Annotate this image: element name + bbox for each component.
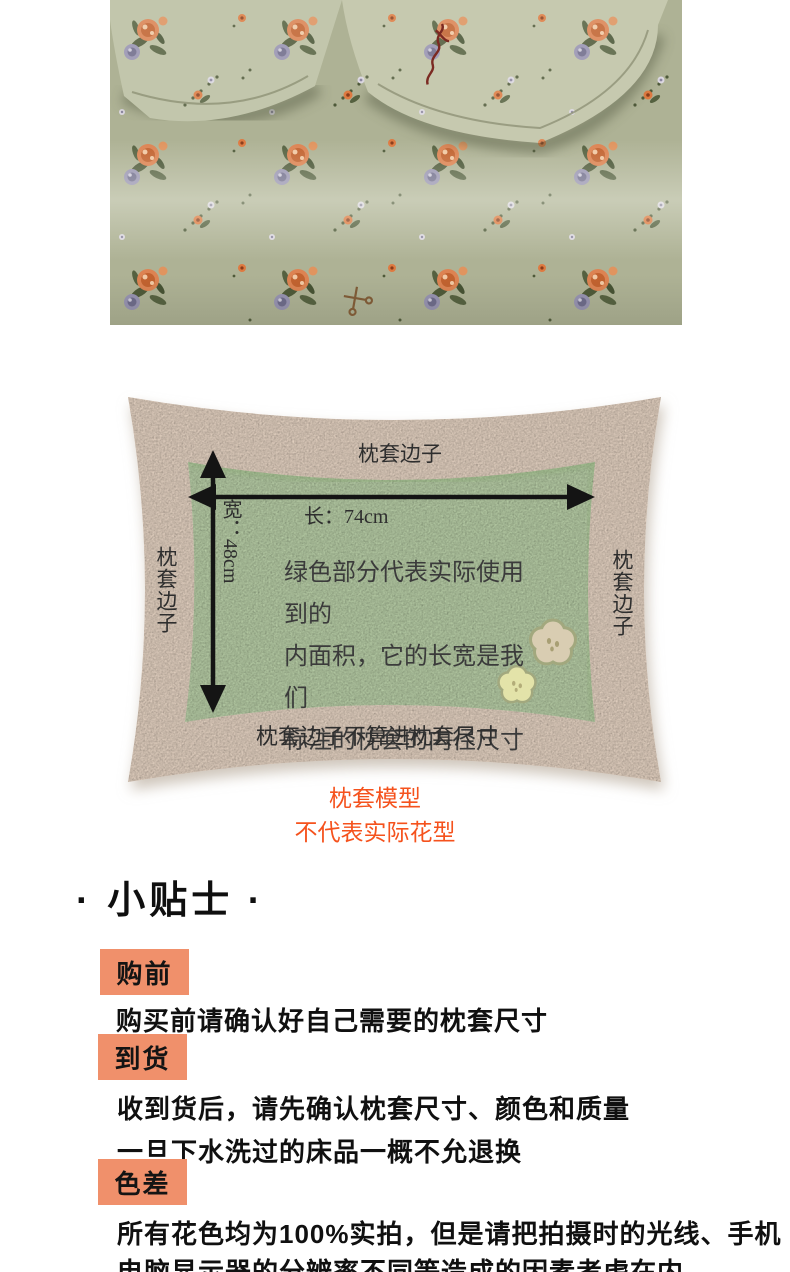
tip-text: 购买前请确认好自己需要的枕套尺寸 — [116, 1001, 548, 1038]
width-dimension-label: 宽：48cm — [216, 499, 245, 629]
sheet-sheen — [110, 140, 682, 260]
diagram-caption-model: 枕套模型 — [255, 779, 495, 813]
tip-text: 收到货后，请先确认枕套尺寸、颜色和质量 — [117, 1089, 630, 1126]
top-edge-label: 枕套边子 — [330, 438, 470, 468]
product-photo — [110, 0, 682, 325]
edge-exclusion-note: 枕套边子不算进枕套尺寸 — [197, 719, 557, 751]
diagram-caption-pattern: 不代表实际花型 — [255, 813, 495, 847]
inner-note-line: 绿色部分代表实际使用到的 — [284, 552, 544, 636]
inner-note-line: 内面积，它的长宽是我们 — [284, 636, 544, 720]
tip-badge-before-purchase: 购前 — [100, 949, 189, 995]
product-detail-page: 枕套边子 长：74cm 宽：48cm 绿色部分代表实际使用到的 内面积，它的长宽… — [0, 0, 790, 1272]
tip-badge-color-difference: 色差 — [98, 1159, 187, 1205]
length-dimension-label: 长：74cm — [304, 500, 388, 529]
tips-title: · 小贴士 · — [76, 869, 264, 924]
right-edge-label: 枕套边子 — [607, 549, 637, 637]
tip-text: 所有花色均为100%实拍，但是请把拍摄时的光线、手机 — [117, 1214, 782, 1251]
floral-bedding-image — [110, 0, 682, 325]
tip-text: 电脑显示器的分辨率不同等造成的因素考虑在内 — [117, 1252, 684, 1272]
left-edge-label: 枕套边子 — [151, 546, 181, 634]
tip-badge-on-arrival: 到货 — [98, 1034, 187, 1080]
